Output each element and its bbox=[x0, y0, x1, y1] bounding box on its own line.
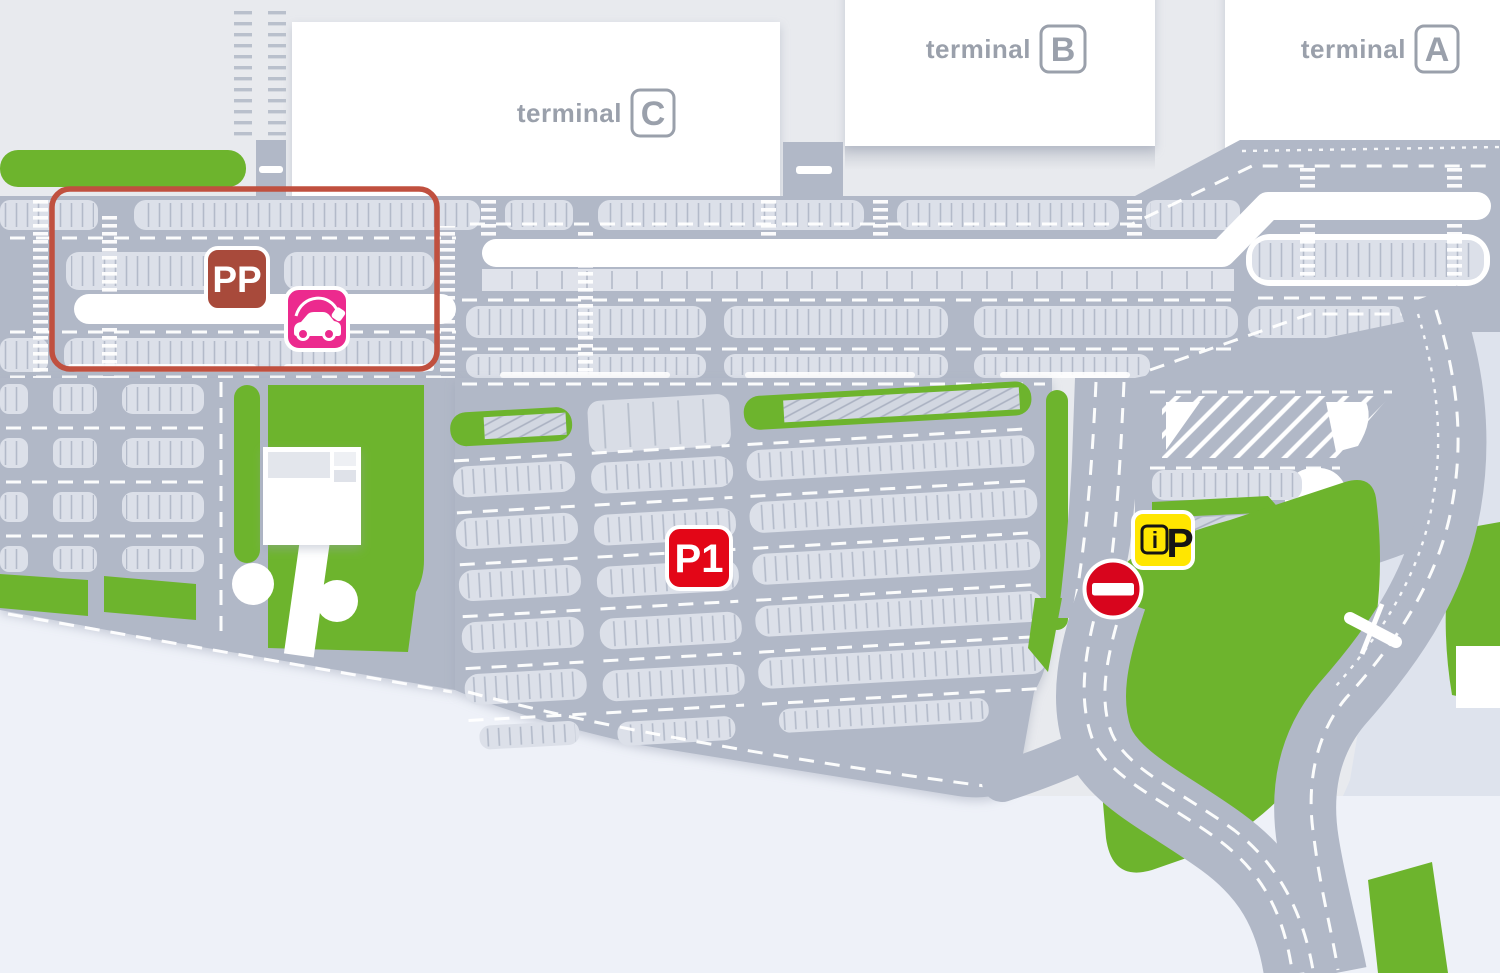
green-strip-top-left bbox=[0, 150, 246, 187]
pp-badge-label: PP bbox=[212, 259, 261, 300]
parking-letter: P bbox=[1166, 520, 1193, 566]
terminal-b-building bbox=[845, 0, 1155, 146]
crosswalk bbox=[578, 230, 593, 376]
airport-parking-map: terminal C terminal B terminal A bbox=[0, 0, 1500, 973]
terminal-b-shadow bbox=[845, 146, 1155, 170]
p1-badge[interactable]: P1 bbox=[667, 527, 731, 589]
service-building bbox=[263, 447, 361, 545]
terminal-a-building bbox=[1225, 0, 1500, 150]
terminal-c-letter: C bbox=[641, 95, 666, 133]
stop-line bbox=[796, 166, 832, 174]
crosswalk bbox=[1300, 166, 1315, 282]
terminal-c-text: terminal bbox=[517, 98, 622, 128]
building bbox=[1456, 646, 1500, 708]
terminal-b-letter: B bbox=[1051, 31, 1076, 69]
roundel bbox=[232, 563, 274, 605]
ev-charging-badge[interactable] bbox=[286, 288, 348, 350]
pp-badge[interactable]: PP bbox=[206, 248, 268, 310]
parking-info-badge[interactable]: i P bbox=[1133, 512, 1194, 568]
p1-parking-lot bbox=[449, 377, 1052, 798]
crosswalk bbox=[481, 198, 496, 238]
crosswalk bbox=[761, 198, 776, 238]
info-letter: i bbox=[1152, 527, 1158, 553]
crosswalk bbox=[873, 198, 888, 238]
p1-badge-label: P1 bbox=[675, 537, 724, 581]
crosswalk bbox=[1447, 166, 1462, 282]
terminal-a-letter: A bbox=[1425, 31, 1450, 69]
stop-line bbox=[259, 166, 283, 173]
no-entry-bar bbox=[1092, 583, 1134, 596]
no-entry-sign[interactable] bbox=[1085, 561, 1142, 618]
roundel bbox=[316, 580, 358, 622]
terminal-a-text: terminal bbox=[1301, 34, 1406, 64]
terminal-b-text: terminal bbox=[926, 34, 1031, 64]
crosswalk bbox=[1127, 198, 1142, 238]
walkway-ladder bbox=[234, 4, 252, 136]
walkway-ladder bbox=[268, 4, 286, 136]
map-canvas: terminal C terminal B terminal A bbox=[0, 0, 1500, 973]
green-strip bbox=[234, 385, 260, 563]
